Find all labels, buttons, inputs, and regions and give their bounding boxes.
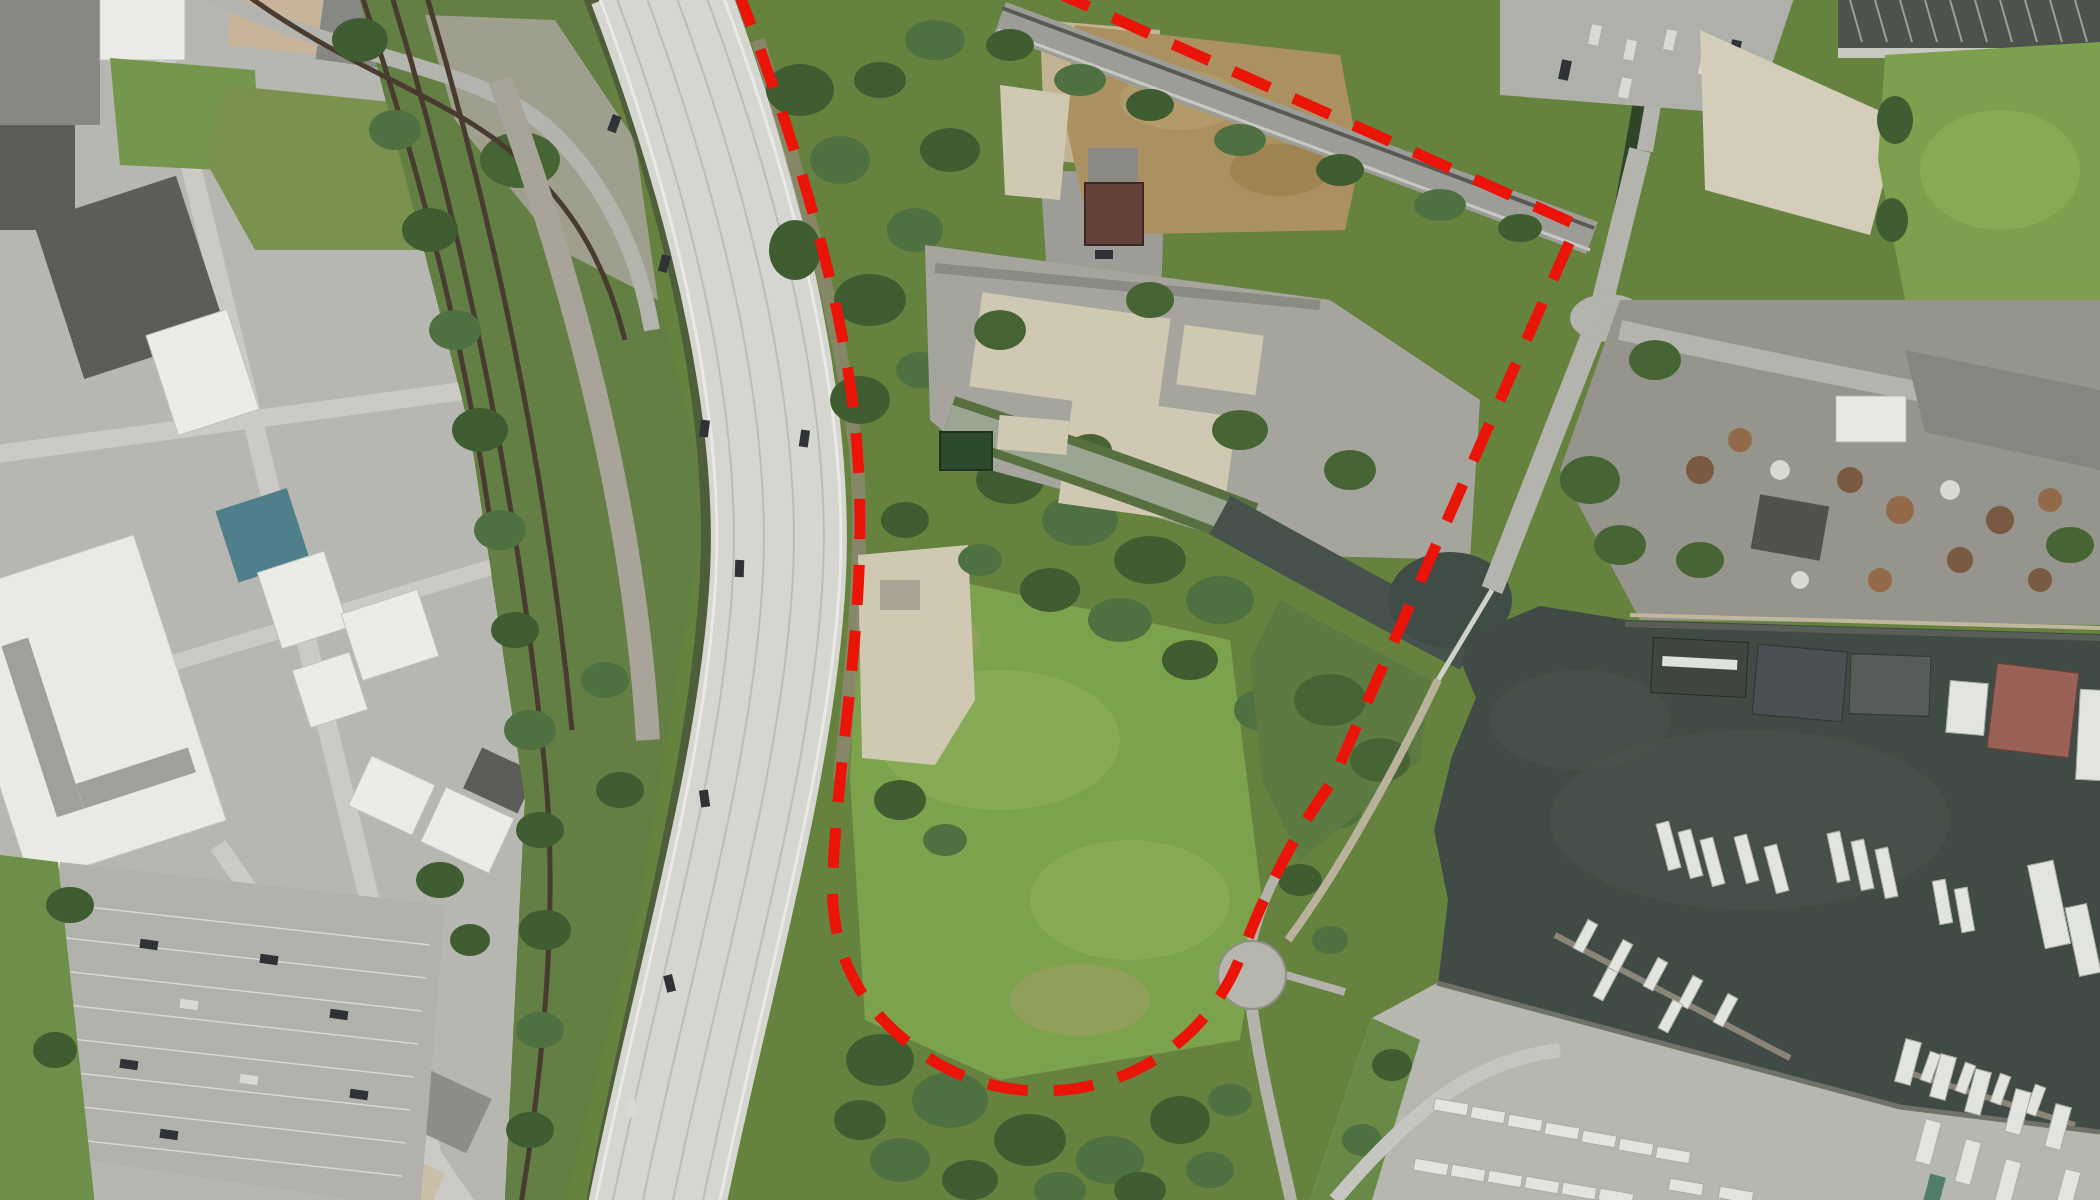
white-shed [1836,396,1906,442]
dark-barge [1752,644,1848,722]
gray-annex-building [1088,148,1138,183]
scrapyard [1560,300,2100,625]
north-shore-pier [1651,638,1749,698]
boathouse [940,432,992,470]
maroon-roof-building [1085,183,1143,245]
dark-barge [1849,654,1931,717]
aerial-map [0,0,2100,1200]
pink-barge [1987,663,2079,757]
